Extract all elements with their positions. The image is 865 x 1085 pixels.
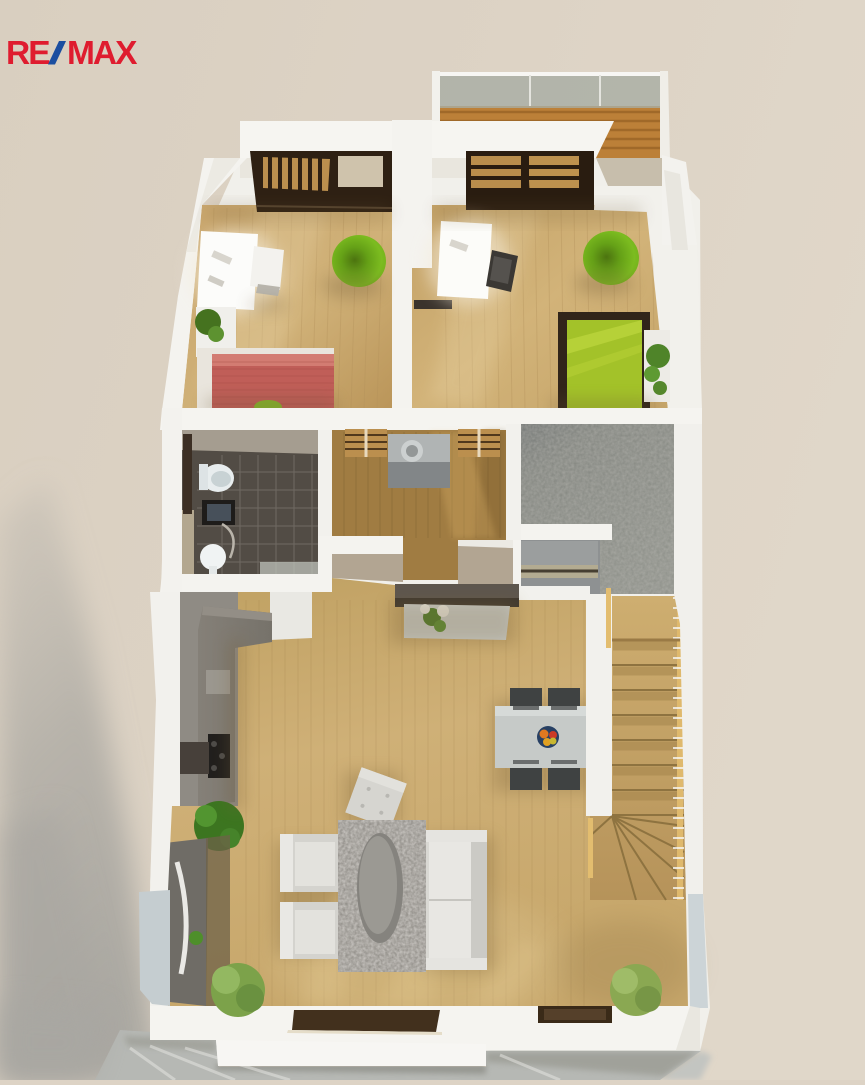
svg-text:RE: RE [6, 35, 50, 72]
svg-text:MAX: MAX [67, 35, 138, 72]
